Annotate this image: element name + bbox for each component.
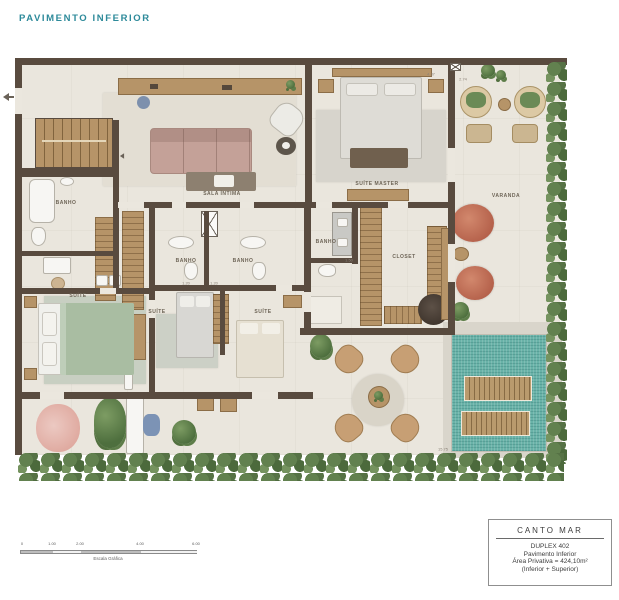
plant <box>310 334 332 358</box>
washbasin <box>60 177 74 186</box>
private-area: Área Privativa = 424,10m² <box>489 558 611 566</box>
nightstand <box>428 79 444 93</box>
decor-item <box>222 85 232 90</box>
scale-bar <box>20 550 197 554</box>
toilet <box>31 227 46 246</box>
chair-cushion <box>466 92 486 108</box>
nightstand <box>24 368 37 380</box>
toilet <box>184 262 198 280</box>
hedge-right <box>546 62 567 464</box>
floor-plan-page: PAVIMENTO INFERIOR <box>0 0 619 600</box>
large-plant <box>94 398 126 448</box>
toilet <box>318 264 336 277</box>
room-label: SUÍTE <box>148 309 165 315</box>
entry-arrow-stem <box>9 96 14 98</box>
table-plant <box>374 391 383 400</box>
unit-info-box: CANTO MAR DUPLEX 402 Pavimento Inferior … <box>488 519 612 586</box>
pillow <box>384 83 416 96</box>
scale-segment <box>21 551 53 553</box>
door-opening <box>240 202 254 208</box>
scale-tick: 2.00 <box>76 541 84 546</box>
bathtub <box>29 179 55 223</box>
bed-throw <box>350 148 408 168</box>
door-opening <box>388 202 408 208</box>
divider <box>496 538 604 539</box>
dimension-label: 1.20 <box>210 281 218 286</box>
door-opening <box>304 292 311 312</box>
wall <box>305 65 312 208</box>
chair-cushion <box>520 92 540 108</box>
vanity-basin <box>337 218 348 227</box>
terracotta-daybed <box>456 266 494 300</box>
decor-item <box>150 84 158 89</box>
hedge-bottom <box>18 453 564 481</box>
plant <box>496 70 506 80</box>
wall <box>22 251 113 256</box>
terrace-opening <box>40 392 64 399</box>
room-label: SUÍTE MASTER <box>355 181 398 187</box>
room-label: SUÍTE <box>69 293 86 299</box>
suite2-cabinet <box>283 295 302 308</box>
dimension-label: 15.75 <box>438 447 448 452</box>
plant <box>481 64 495 77</box>
wall <box>204 211 209 287</box>
wall <box>352 208 358 264</box>
staircase <box>35 118 113 168</box>
side-table <box>498 98 511 111</box>
room-label: BANHO <box>56 200 77 206</box>
glass-door-opening <box>448 148 455 182</box>
headboard <box>332 68 432 77</box>
room-label: VARANDA <box>492 193 520 199</box>
wall <box>113 120 119 174</box>
room-label: SUÍTE <box>254 309 271 315</box>
bathtub-basin <box>240 236 266 249</box>
stair-handrail <box>42 140 106 142</box>
bed-bench <box>347 189 409 201</box>
pillow <box>262 323 280 334</box>
area-note: (Inferior + Superior) <box>489 566 611 574</box>
wardrobe <box>122 211 144 310</box>
shower-floor <box>308 296 342 324</box>
unit-name: DUPLEX 402 <box>489 543 611 551</box>
floor-name: Pavimento Inferior <box>489 551 611 559</box>
wall <box>113 174 119 294</box>
scale-tick: 4.00 <box>136 541 144 546</box>
project-name: CANTO MAR <box>489 526 611 535</box>
pillow <box>180 296 194 307</box>
wall <box>300 328 455 335</box>
door-opening <box>100 288 116 294</box>
wall <box>304 205 311 335</box>
scale-tick: 0 <box>21 541 23 546</box>
scale-segment <box>53 551 81 553</box>
pool-lounger <box>461 411 530 436</box>
side-table-tray <box>282 142 290 149</box>
door-opening <box>316 202 332 208</box>
wall <box>220 291 225 355</box>
scale-segment <box>141 551 197 553</box>
nightstand <box>318 79 334 93</box>
study-desk <box>126 396 144 454</box>
dimension-label: 1.50 <box>345 258 353 263</box>
pillow <box>196 296 210 307</box>
scale-caption: Escala Gráfica <box>93 556 122 561</box>
plant <box>172 420 196 444</box>
wall <box>448 65 455 335</box>
wall <box>15 58 567 65</box>
door-opening <box>172 202 186 208</box>
potted-plant <box>286 80 295 89</box>
door-arrow-icon <box>120 153 124 159</box>
ottoman <box>512 124 538 143</box>
room-label: BANHO <box>176 258 197 264</box>
stool <box>220 398 237 412</box>
sofa <box>150 128 252 174</box>
vanity-basin <box>337 238 348 247</box>
room-label: BANHO <box>233 258 254 264</box>
vanity-desk <box>43 257 71 274</box>
window-symbol <box>450 63 461 71</box>
terrace-opening <box>252 392 278 399</box>
scale-tick: 1.00 <box>48 541 56 546</box>
glass-door-opening <box>448 244 455 282</box>
room-label: SALA ÍNTIMA <box>203 191 241 197</box>
page-title: PAVIMENTO INFERIOR <box>19 13 151 24</box>
pillow <box>42 342 57 366</box>
wall <box>149 205 155 392</box>
graphic-scale: 0 1.00 2.00 4.00 6.00 Escala Gráfica <box>20 541 200 563</box>
dimension-label: 1.20 <box>182 281 190 286</box>
pillow <box>240 323 258 334</box>
room-label: CLOSET <box>392 254 415 260</box>
side-table <box>453 247 469 261</box>
pillow <box>42 312 57 336</box>
dimension-label: 2.74 <box>459 77 467 82</box>
bathtub-basin <box>168 236 194 249</box>
closet-drawers <box>384 306 422 324</box>
blue-stool <box>137 96 150 109</box>
room-label: BANHO <box>316 239 337 245</box>
pink-armchair <box>36 404 80 452</box>
door-opening <box>276 285 292 291</box>
toilet <box>252 262 266 280</box>
wall <box>22 172 118 177</box>
pool-lounger <box>464 376 532 401</box>
sideboard <box>118 78 302 95</box>
scale-segment <box>81 551 141 553</box>
green-duvet <box>60 303 134 375</box>
dimension-label: 4.37 <box>427 72 435 77</box>
scale-tick: 6.00 <box>192 541 200 546</box>
nightstand <box>24 296 37 308</box>
coffee-table-tray <box>214 175 234 187</box>
pillow <box>346 83 378 96</box>
terracotta-daybed <box>452 204 494 242</box>
entry-opening <box>15 88 22 114</box>
washer <box>96 275 108 286</box>
ottoman <box>466 124 492 143</box>
door-opening <box>118 202 144 208</box>
desk-chair <box>143 414 160 436</box>
closet-wardrobe <box>360 206 382 326</box>
